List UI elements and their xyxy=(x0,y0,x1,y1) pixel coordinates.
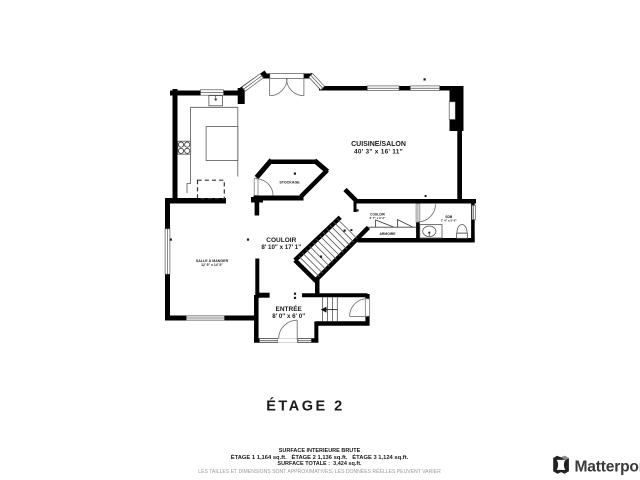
svg-text:STOCKAGE: STOCKAGE xyxy=(279,181,300,185)
svg-text:SURFACE INTERIEURE BRUTE: SURFACE INTERIEURE BRUTE xyxy=(279,448,361,454)
svg-text:Matterport: Matterport xyxy=(575,458,640,475)
svg-text:7' 4" x 5' 6": 7' 4" x 5' 6" xyxy=(441,219,458,223)
svg-text:40' 3" x 16' 11": 40' 3" x 16' 11" xyxy=(354,149,403,156)
svg-text:8' 10" x 17' 1": 8' 10" x 17' 1" xyxy=(261,244,301,251)
svg-text:CUISINE/SALON: CUISINE/SALON xyxy=(351,141,406,148)
svg-text:ÉTAGE 2: ÉTAGE 2 xyxy=(266,398,344,415)
svg-text:ENTRÉE: ENTRÉE xyxy=(276,304,303,313)
svg-text:ARMOIRE: ARMOIRE xyxy=(379,232,396,236)
svg-text:SURFACE TOTALE : 3,424 sq.ft.: SURFACE TOTALE : 3,424 sq.ft. xyxy=(277,461,362,467)
svg-text:LES TAILLES ET DIMENSIONS SONT: LES TAILLES ET DIMENSIONS SONT APPROXIMA… xyxy=(198,468,441,475)
svg-text:12' 5" x 14' 5": 12' 5" x 14' 5" xyxy=(201,263,223,267)
svg-text:ÉTAGE 1 1,164 sq.ft. ÉTAGE 2: ÉTAGE 1 1,164 sq.ft. ÉTAGE 2 1,136 sq.ft… xyxy=(231,453,409,461)
svg-text:COULOIR: COULOIR xyxy=(266,237,296,244)
svg-text:3' 7" x 9' 2": 3' 7" x 9' 2" xyxy=(370,216,387,220)
svg-text:8' 0" x 6' 0": 8' 0" x 6' 0" xyxy=(272,313,305,320)
